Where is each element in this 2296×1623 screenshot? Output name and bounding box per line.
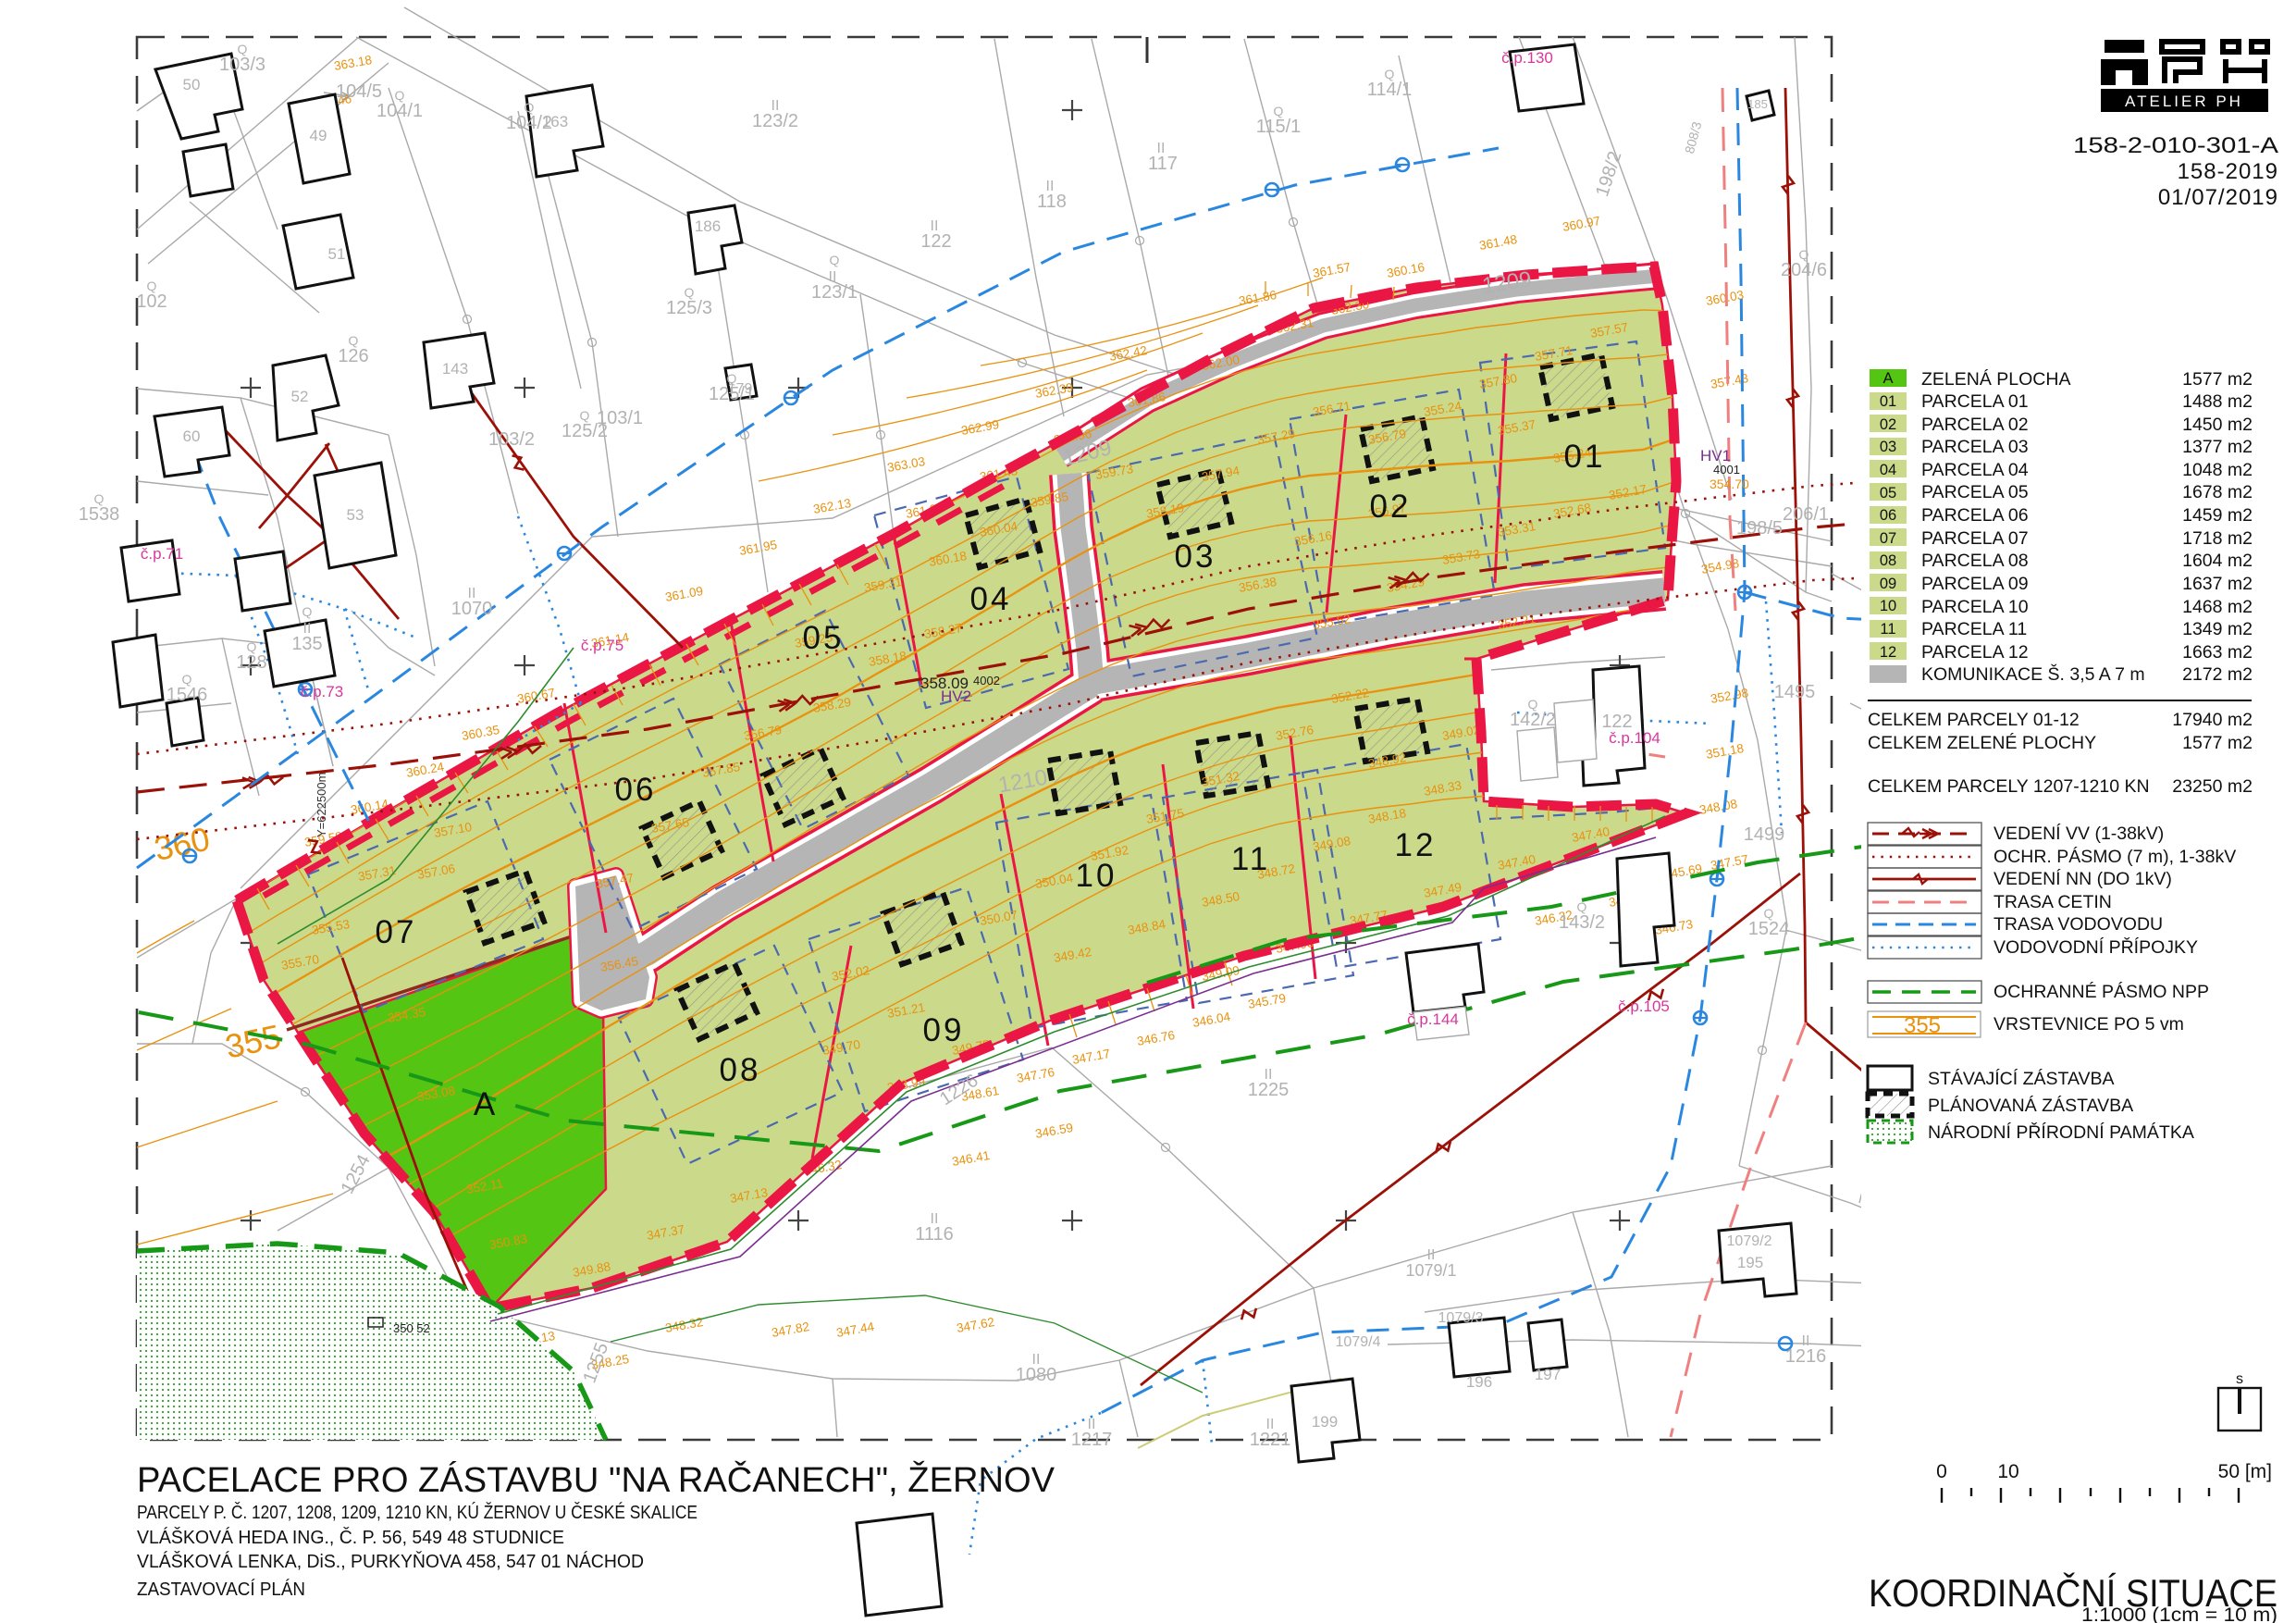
svg-text:1070: 1070 bbox=[451, 599, 493, 619]
svg-text:103/1: 103/1 bbox=[597, 408, 643, 428]
svg-text:II: II bbox=[931, 218, 939, 234]
svg-text:II: II bbox=[829, 269, 837, 285]
svg-text:103/3: 103/3 bbox=[219, 55, 265, 75]
svg-text:PARCELA 03: PARCELA 03 bbox=[1921, 437, 2029, 457]
svg-text:204/6: 204/6 bbox=[1781, 260, 1827, 280]
svg-text:06: 06 bbox=[1880, 507, 1896, 524]
svg-text:Q: Q bbox=[302, 604, 313, 619]
svg-text:09: 09 bbox=[923, 1012, 965, 1048]
svg-text:10: 10 bbox=[1997, 1461, 2018, 1482]
svg-text:VEDENÍ NN (DO 1kV): VEDENÍ NN (DO 1kV) bbox=[1994, 868, 2172, 889]
svg-text:123/1: 123/1 bbox=[811, 282, 858, 303]
svg-text:350 52: 350 52 bbox=[393, 1321, 430, 1335]
svg-text:126: 126 bbox=[338, 346, 368, 366]
svg-text:10: 10 bbox=[1076, 858, 1117, 894]
svg-text:125/3: 125/3 bbox=[666, 298, 712, 318]
svg-text:PARCELA 07: PARCELA 07 bbox=[1921, 528, 2029, 549]
svg-text:II: II bbox=[1046, 179, 1055, 194]
svg-text:128: 128 bbox=[236, 652, 266, 673]
svg-text:1468 m2: 1468 m2 bbox=[2182, 597, 2253, 617]
svg-text:10: 10 bbox=[1880, 598, 1896, 614]
svg-text:1499: 1499 bbox=[1744, 824, 1785, 845]
svg-text:60: 60 bbox=[183, 427, 201, 445]
svg-text:Q: Q bbox=[580, 408, 590, 423]
svg-text:1:1000 (1cm = 10 m): 1:1000 (1cm = 10 m) bbox=[2081, 1604, 2277, 1623]
svg-text:CELKEM PARCELY 1207-1210 KN: CELKEM PARCELY 1207-1210 KN bbox=[1868, 776, 2150, 797]
svg-text:195: 195 bbox=[1737, 1254, 1763, 1271]
svg-text:VODOVODNÍ PŘÍPOJKY: VODOVODNÍ PŘÍPOJKY bbox=[1994, 936, 2198, 958]
svg-text:51: 51 bbox=[328, 245, 346, 263]
svg-text:4001: 4001 bbox=[1713, 463, 1740, 477]
svg-text:1678 m2: 1678 m2 bbox=[2182, 482, 2253, 502]
svg-text:1079/3: 1079/3 bbox=[1438, 1310, 1484, 1326]
svg-text:CELKEM PARCELY 01-12: CELKEM PARCELY 01-12 bbox=[1868, 710, 2080, 730]
svg-text:115/1: 115/1 bbox=[1256, 117, 1302, 137]
svg-text:Q: Q bbox=[1799, 247, 1809, 262]
svg-text:1577 m2: 1577 m2 bbox=[2182, 733, 2253, 753]
svg-text:122: 122 bbox=[920, 231, 951, 252]
svg-text:Q: Q bbox=[349, 333, 359, 348]
svg-text:197: 197 bbox=[1535, 1366, 1561, 1383]
svg-text:1546: 1546 bbox=[167, 685, 208, 705]
svg-text:04: 04 bbox=[970, 581, 1012, 617]
svg-text:ATELIER PH: ATELIER PH bbox=[2125, 93, 2243, 110]
svg-text:Q: Q bbox=[1274, 104, 1284, 118]
svg-text:Q: Q bbox=[147, 279, 157, 293]
svg-text:103/2: 103/2 bbox=[488, 429, 535, 450]
svg-text:12: 12 bbox=[1395, 827, 1437, 863]
svg-text:TRASA CETIN: TRASA CETIN bbox=[1994, 892, 2112, 912]
svg-text:A: A bbox=[1882, 370, 1893, 387]
svg-text:11: 11 bbox=[1231, 841, 1270, 877]
svg-text:49: 49 bbox=[310, 127, 327, 144]
svg-text:II: II bbox=[303, 621, 312, 637]
svg-text:118: 118 bbox=[1037, 192, 1067, 212]
svg-text:199: 199 bbox=[1312, 1413, 1338, 1431]
svg-text:11: 11 bbox=[1880, 621, 1895, 638]
svg-text:Q: Q bbox=[830, 253, 840, 267]
svg-text:1450 m2: 1450 m2 bbox=[2182, 415, 2253, 435]
svg-text:1079/1: 1079/1 bbox=[1405, 1261, 1456, 1280]
svg-text:A: A bbox=[474, 1086, 498, 1122]
svg-text:143/2: 143/2 bbox=[1559, 912, 1605, 933]
svg-text:53: 53 bbox=[347, 506, 364, 524]
svg-text:358.09: 358.09 bbox=[920, 675, 969, 692]
svg-text:158-2-010-301-A: 158-2-010-301-A bbox=[2073, 133, 2278, 158]
svg-text:196: 196 bbox=[1466, 1373, 1492, 1391]
svg-text:12: 12 bbox=[1880, 644, 1896, 661]
svg-text:1221: 1221 bbox=[1250, 1430, 1291, 1450]
svg-text:1459 m2: 1459 m2 bbox=[2182, 505, 2253, 526]
svg-text:II: II bbox=[1266, 1417, 1275, 1432]
svg-text:II: II bbox=[1265, 1067, 1273, 1083]
svg-text:PLÁNOVANÁ ZÁSTAVBA: PLÁNOVANÁ ZÁSTAVBA bbox=[1928, 1095, 2133, 1116]
svg-text:1079/2: 1079/2 bbox=[1727, 1233, 1772, 1249]
svg-text:NÁRODNÍ PŘÍRODNÍ PAMÁTKA: NÁRODNÍ PŘÍRODNÍ PAMÁTKA bbox=[1928, 1121, 2194, 1143]
svg-text:Q: Q bbox=[727, 371, 737, 386]
svg-text:123/2: 123/2 bbox=[752, 111, 798, 131]
svg-text:08: 08 bbox=[1880, 552, 1896, 569]
svg-text:STÁVAJÍCÍ ZÁSTAVBA: STÁVAJÍCÍ ZÁSTAVBA bbox=[1928, 1068, 2115, 1089]
svg-text:PARCELA 04: PARCELA 04 bbox=[1921, 460, 2029, 480]
svg-text:TRASA VODOVODU: TRASA VODOVODU bbox=[1994, 914, 2163, 935]
svg-text:206/1: 206/1 bbox=[1783, 504, 1829, 525]
svg-text:185: 185 bbox=[1747, 97, 1768, 111]
svg-text:č.p.104: č.p.104 bbox=[1609, 729, 1660, 747]
svg-text:354.70: 354.70 bbox=[1710, 477, 1749, 491]
svg-text:1079/4: 1079/4 bbox=[1336, 1334, 1381, 1350]
svg-text:17940 m2: 17940 m2 bbox=[2172, 710, 2253, 730]
svg-text:01/07/2019: 01/07/2019 bbox=[2158, 185, 2278, 210]
svg-text:104/1: 104/1 bbox=[376, 101, 423, 121]
svg-text:Q: Q bbox=[238, 42, 248, 56]
svg-text:1116: 1116 bbox=[915, 1224, 954, 1245]
svg-text:102: 102 bbox=[136, 291, 167, 312]
svg-text:03: 03 bbox=[1880, 439, 1896, 455]
svg-text:1577 m2: 1577 m2 bbox=[2182, 369, 2253, 390]
svg-text:1217: 1217 bbox=[1071, 1430, 1113, 1450]
svg-text:23250 m2: 23250 m2 bbox=[2172, 776, 2253, 797]
svg-text:142/2: 142/2 bbox=[1510, 710, 1556, 730]
svg-text:1538: 1538 bbox=[79, 504, 120, 525]
svg-text:II: II bbox=[468, 586, 476, 601]
svg-text:1604 m2: 1604 m2 bbox=[2182, 551, 2253, 571]
svg-text:KOMUNIKACE Š. 3,5 A 7 m: KOMUNIKACE Š. 3,5 A 7 m bbox=[1921, 663, 2145, 685]
svg-text:Q: Q bbox=[1528, 697, 1538, 712]
svg-text:1718 m2: 1718 m2 bbox=[2182, 528, 2253, 549]
svg-text:04: 04 bbox=[1880, 462, 1896, 478]
svg-text:07: 07 bbox=[376, 914, 417, 950]
svg-text:Q: Q bbox=[1385, 67, 1395, 81]
svg-text:52: 52 bbox=[291, 388, 309, 405]
svg-text:117: 117 bbox=[1148, 154, 1178, 174]
svg-text:1216: 1216 bbox=[1785, 1346, 1827, 1367]
svg-text:OCHRANNÉ PÁSMO NPP: OCHRANNÉ PÁSMO NPP bbox=[1994, 981, 2209, 1002]
svg-text:VLÁŠKOVÁ LENKA, DiS., PURKYŇOV: VLÁŠKOVÁ LENKA, DiS., PURKYŇOVA 458, 547… bbox=[137, 1551, 644, 1572]
svg-text:PARCELA 12: PARCELA 12 bbox=[1921, 642, 2029, 663]
svg-text:02: 02 bbox=[1370, 489, 1412, 525]
svg-text:PARCELA 01: PARCELA 01 bbox=[1921, 391, 2029, 412]
svg-text:05: 05 bbox=[803, 620, 845, 656]
svg-text:05: 05 bbox=[1880, 485, 1896, 502]
svg-text:č.p.105: č.p.105 bbox=[1618, 997, 1670, 1015]
svg-text:PARCELY P. Č. 1207, 1208, 1209: PARCELY P. Č. 1207, 1208, 1209, 1210 KN,… bbox=[137, 1502, 697, 1523]
svg-text:4002: 4002 bbox=[973, 674, 1000, 688]
svg-text:Q: Q bbox=[247, 639, 257, 654]
svg-text:158-2019: 158-2019 bbox=[2178, 159, 2278, 184]
svg-text:VEDENÍ VV (1-38kV): VEDENÍ VV (1-38kV) bbox=[1994, 823, 2164, 844]
svg-text:07: 07 bbox=[1880, 530, 1896, 547]
svg-text:Q: Q bbox=[685, 285, 695, 300]
svg-text:1225: 1225 bbox=[1248, 1080, 1290, 1100]
svg-text:Y=622500m: Y=622500m bbox=[315, 773, 328, 837]
svg-text:Q: Q bbox=[182, 672, 192, 687]
svg-text:č.p.71: č.p.71 bbox=[141, 545, 183, 563]
svg-text:CELKEM ZELENÉ PLOCHY: CELKEM ZELENÉ PLOCHY bbox=[1868, 732, 2096, 753]
svg-text:PARCELA 06: PARCELA 06 bbox=[1921, 505, 2029, 526]
svg-text:186: 186 bbox=[695, 217, 721, 235]
svg-text:č.p.144: č.p.144 bbox=[1407, 1010, 1459, 1028]
svg-text:06: 06 bbox=[615, 772, 657, 808]
svg-text:s: s bbox=[2236, 1371, 2243, 1387]
svg-text:Q: Q bbox=[1577, 899, 1587, 914]
svg-text:03: 03 bbox=[1175, 539, 1216, 575]
svg-text:01: 01 bbox=[1564, 439, 1606, 475]
svg-text:163: 163 bbox=[542, 113, 568, 130]
svg-text:50: 50 bbox=[183, 76, 201, 93]
svg-text:01: 01 bbox=[1880, 393, 1896, 410]
svg-text:PARCELA 10: PARCELA 10 bbox=[1921, 597, 2029, 617]
svg-text:1495: 1495 bbox=[1774, 682, 1816, 702]
svg-text:143: 143 bbox=[442, 360, 468, 378]
svg-text:VLÁŠKOVÁ HEDA ING., Č. P. 56,: VLÁŠKOVÁ HEDA ING., Č. P. 56, 549 48 STU… bbox=[137, 1527, 564, 1548]
svg-text:09: 09 bbox=[1880, 576, 1896, 592]
svg-text:II: II bbox=[1157, 141, 1166, 156]
svg-text:1349 m2: 1349 m2 bbox=[2182, 619, 2253, 639]
svg-text:PARCELA 08: PARCELA 08 bbox=[1921, 551, 2029, 571]
svg-text:II: II bbox=[1802, 1333, 1810, 1349]
svg-text:II: II bbox=[931, 1211, 939, 1227]
svg-text:1080: 1080 bbox=[1016, 1365, 1057, 1385]
svg-text:PARCELA 05: PARCELA 05 bbox=[1921, 482, 2029, 502]
svg-text:II: II bbox=[1427, 1247, 1436, 1263]
svg-text:VRSTEVNICE PO 5 vm: VRSTEVNICE PO 5 vm bbox=[1994, 1014, 2184, 1035]
svg-text:1488 m2: 1488 m2 bbox=[2182, 391, 2253, 412]
svg-text:355: 355 bbox=[1904, 1013, 1941, 1038]
svg-text:OCHR. PÁSMO (7 m), 1-38kV: OCHR. PÁSMO (7 m), 1-38kV bbox=[1994, 846, 2236, 867]
svg-text:0: 0 bbox=[1936, 1461, 1947, 1482]
svg-text:135: 135 bbox=[291, 634, 322, 654]
svg-text:1048 m2: 1048 m2 bbox=[2182, 460, 2253, 480]
svg-text:Q: Q bbox=[525, 100, 535, 115]
svg-text:2172 m2: 2172 m2 bbox=[2182, 664, 2253, 685]
svg-text:Q: Q bbox=[94, 491, 105, 506]
svg-text:198/5: 198/5 bbox=[1736, 518, 1783, 539]
svg-text:ZELENÁ PLOCHA: ZELENÁ PLOCHA bbox=[1921, 368, 2070, 390]
svg-text:Q: Q bbox=[395, 88, 405, 103]
svg-text:II: II bbox=[1088, 1417, 1096, 1432]
svg-text:č.p.75: č.p.75 bbox=[581, 637, 623, 654]
svg-text:114/1: 114/1 bbox=[1367, 80, 1413, 100]
svg-text:02: 02 bbox=[1880, 416, 1896, 433]
svg-text:50 [m]: 50 [m] bbox=[2218, 1461, 2272, 1482]
svg-text:Q: Q bbox=[1764, 906, 1774, 921]
svg-text:1637 m2: 1637 m2 bbox=[2182, 574, 2253, 594]
svg-text:1377 m2: 1377 m2 bbox=[2182, 437, 2253, 457]
svg-text:1524: 1524 bbox=[1748, 919, 1790, 939]
svg-text:104/5: 104/5 bbox=[336, 81, 382, 102]
svg-text:1663 m2: 1663 m2 bbox=[2182, 642, 2253, 663]
svg-text:08: 08 bbox=[720, 1052, 761, 1088]
svg-text:PARCELA 02: PARCELA 02 bbox=[1921, 415, 2029, 435]
svg-text:ZASTAVOVACÍ PLÁN: ZASTAVOVACÍ PLÁN bbox=[137, 1579, 305, 1600]
svg-text:II: II bbox=[1032, 1352, 1041, 1368]
svg-text:PARCELA 11: PARCELA 11 bbox=[1921, 619, 2027, 639]
svg-text:II: II bbox=[772, 98, 780, 114]
svg-text:PACELACE PRO ZÁSTAVBU "NA RAČA: PACELACE PRO ZÁSTAVBU "NA RAČANECH", ŽER… bbox=[137, 1459, 1055, 1500]
svg-text:č.p.130: č.p.130 bbox=[1501, 49, 1553, 67]
svg-text:č.p.73: č.p.73 bbox=[301, 683, 343, 700]
svg-text:PARCELA 09: PARCELA 09 bbox=[1921, 574, 2029, 594]
